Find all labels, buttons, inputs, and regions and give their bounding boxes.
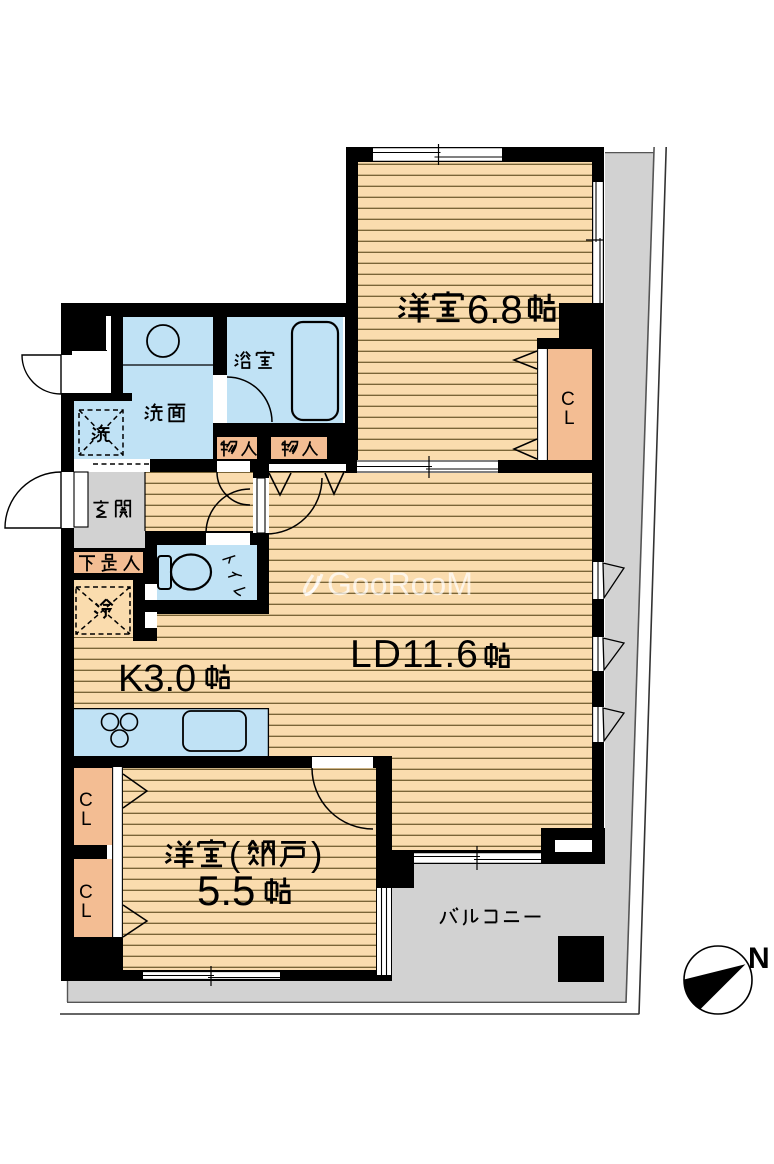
svg-text:L: L [564, 408, 575, 429]
svg-text:K3.0: K3.0 [118, 658, 196, 700]
svg-text:C: C [79, 790, 93, 811]
svg-text:5.5: 5.5 [197, 867, 255, 914]
svg-text:N: N [748, 942, 770, 975]
svg-text:C: C [79, 882, 93, 903]
svg-text:): ) [311, 836, 322, 874]
svg-text:L: L [81, 901, 92, 922]
svg-text:C: C [561, 389, 575, 410]
svg-text:6.8: 6.8 [467, 288, 523, 332]
svg-text:GooRooM: GooRooM [327, 566, 473, 602]
svg-text:L: L [81, 809, 92, 830]
svg-text:LD11.6: LD11.6 [350, 633, 479, 676]
